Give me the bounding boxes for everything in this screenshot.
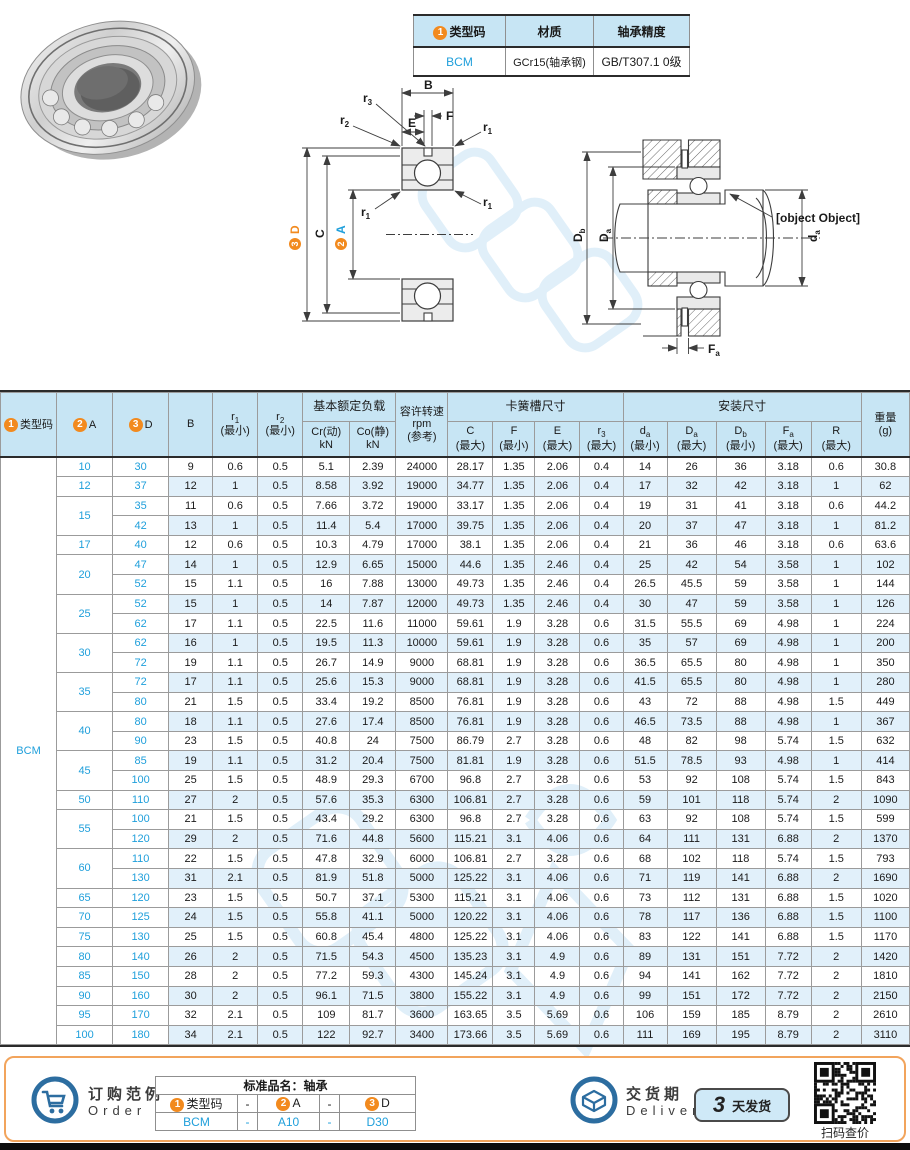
spec-cell: 68.81 (448, 673, 493, 693)
spec-cell: 5.74 (765, 849, 811, 869)
cart-icon (30, 1075, 80, 1125)
spec-cell: 4.98 (765, 712, 811, 732)
order-value-a: A10 (258, 1113, 320, 1131)
order-dash: - (238, 1113, 258, 1131)
spec-cell: 6.88 (765, 829, 811, 849)
spec-cell: 4.06 (535, 868, 580, 888)
bottom-bar (0, 1143, 910, 1150)
spec-cell: 2.7 (493, 731, 535, 751)
dim-label-r1: r1 (361, 205, 371, 221)
spec-cell: 3.18 (765, 477, 811, 497)
spec-cell: 4.06 (535, 888, 580, 908)
bore-a-cell: 25 (57, 594, 113, 633)
spec-cell: 102 (667, 849, 716, 869)
spec-cell: 0.6 (580, 927, 623, 947)
spec-cell: 17 (169, 614, 213, 634)
bore-a-cell: 55 (57, 810, 113, 849)
spec-row: 62171.10.522.511.61100059.611.93.280.631… (1, 614, 910, 634)
spec-cell: 3.28 (535, 614, 580, 634)
spec-cell: 1.5 (213, 731, 258, 751)
od-d-cell: 180 (113, 1025, 169, 1045)
spec-cell: 2.06 (535, 477, 580, 497)
spec-cell: 5000 (396, 868, 448, 888)
spec-cell: 92 (667, 771, 716, 791)
spec-cell: 0.4 (580, 477, 623, 497)
header-Da: Da(最大) (667, 422, 716, 458)
order-col-a: 2A (258, 1095, 320, 1113)
spec-cell: 68 (623, 849, 667, 869)
spec-cell: 0.5 (258, 966, 303, 986)
spec-cell: 5000 (396, 908, 448, 928)
spec-cell: 599 (861, 810, 909, 830)
spec-cell: 126 (861, 594, 909, 614)
spec-cell: 46.5 (623, 712, 667, 732)
spec-cell: 1.35 (493, 555, 535, 575)
spec-cell: 22 (169, 849, 213, 869)
spec-cell: 48.9 (303, 771, 350, 791)
summary-material: GCr15(轴承钢) (506, 47, 594, 76)
spec-cell: 0.5 (258, 1025, 303, 1045)
svg-text:D: D (288, 225, 302, 234)
spec-row: 3572171.10.525.615.3900068.811.93.280.64… (1, 673, 910, 693)
spec-cell: 33.4 (303, 692, 350, 712)
spec-cell: 96.1 (303, 986, 350, 1006)
spec-cell: 4.98 (765, 633, 811, 653)
spec-cell: 0.6 (580, 868, 623, 888)
spec-cell: 4.06 (535, 829, 580, 849)
spec-cell: 0.5 (258, 1006, 303, 1026)
spec-cell: 29.2 (350, 810, 396, 830)
spec-cell: 37 (667, 516, 716, 536)
spec-cell: 35 (623, 633, 667, 653)
spec-cell: 68.81 (448, 653, 493, 673)
spec-cell: 1.9 (493, 692, 535, 712)
spec-cell: 6000 (396, 849, 448, 869)
spec-cell: 195 (716, 1025, 765, 1045)
spec-cell: 135.23 (448, 947, 493, 967)
spec-cell: 71.5 (350, 986, 396, 1006)
spec-cell: 98 (716, 731, 765, 751)
spec-cell: 3800 (396, 986, 448, 1006)
spec-cell: 5600 (396, 829, 448, 849)
spec-cell: 4.98 (765, 673, 811, 693)
spec-cell: 73 (623, 888, 667, 908)
spec-cell: 65.5 (667, 673, 716, 693)
spec-cell: 5.74 (765, 731, 811, 751)
spec-cell: 1.5 (811, 731, 861, 751)
spec-cell: 120.22 (448, 908, 493, 928)
spec-cell: 11.6 (350, 614, 396, 634)
spec-cell: 3.5 (493, 1025, 535, 1045)
spec-cell: 45.4 (350, 927, 396, 947)
spec-cell: 4800 (396, 927, 448, 947)
spec-cell: 2.1 (213, 1006, 258, 1026)
od-d-cell: 170 (113, 1006, 169, 1026)
spec-cell: 2 (811, 829, 861, 849)
spec-cell: 414 (861, 751, 909, 771)
spec-cell: 1.35 (493, 496, 535, 516)
spec-cell: 0.5 (258, 908, 303, 928)
spec-cell: 1 (213, 594, 258, 614)
spec-cell: 2.46 (535, 575, 580, 595)
spec-cell: 0.6 (811, 535, 861, 555)
spec-cell: 81.2 (861, 516, 909, 536)
spec-cell: 155.22 (448, 986, 493, 1006)
spec-cell: 34 (169, 1025, 213, 1045)
spec-cell: 118 (716, 849, 765, 869)
spec-row: 30621610.519.511.31000059.611.93.280.635… (1, 633, 910, 653)
spec-cell: 151 (716, 947, 765, 967)
spec-cell: 5.1 (303, 457, 350, 477)
spec-cell: 0.4 (580, 457, 623, 477)
spec-cell: 101 (667, 790, 716, 810)
spec-cell: 71.6 (303, 829, 350, 849)
spec-cell: 6.88 (765, 868, 811, 888)
spec-cell: 29.3 (350, 771, 396, 791)
od-d-cell: 72 (113, 653, 169, 673)
svg-text:A: A (334, 225, 348, 234)
spec-cell: 1 (811, 594, 861, 614)
header-Db: Db(最小) (716, 422, 765, 458)
spec-cell: 59.61 (448, 614, 493, 634)
spec-cell: 63 (623, 810, 667, 830)
spec-cell: 2.7 (493, 810, 535, 830)
spec-cell: 24 (169, 908, 213, 928)
spec-cell: 1.5 (811, 849, 861, 869)
spec-cell: 112 (667, 888, 716, 908)
header-b: B (169, 393, 213, 458)
catalog-page: 1类型码 材质 轴承精度 BCM GCr15(轴承钢) GB/T307.1 0级 (0, 0, 910, 1150)
spec-table-section: 1类型码 2A 3D B r1(最小) r2(最小) 基本额定负载 容许转速rp… (0, 390, 910, 1047)
spec-cell: 12000 (396, 594, 448, 614)
spec-cell: 0.5 (258, 810, 303, 830)
spec-cell: 28.17 (448, 457, 493, 477)
spec-cell: 0.6 (580, 653, 623, 673)
bore-a-cell: 45 (57, 751, 113, 790)
spec-cell: 1.9 (493, 614, 535, 634)
svg-text:da: da (806, 230, 822, 242)
spec-cell: 16 (169, 633, 213, 653)
spec-cell: 7.88 (350, 575, 396, 595)
spec-cell: 3.1 (493, 927, 535, 947)
spec-cell: 131 (667, 947, 716, 967)
spec-cell: 1.1 (213, 673, 258, 693)
spec-cell: 16 (303, 575, 350, 595)
header-group-snapring: 卡簧槽尺寸 (448, 393, 623, 422)
od-d-cell: 52 (113, 594, 169, 614)
spec-cell: 19000 (396, 477, 448, 497)
cross-section-diagram: B E F r3 r2 r1 r1 r1 3 D C 2 A (283, 76, 513, 346)
bearing-photo (8, 8, 223, 168)
spec-row: 25521510.5147.871200049.731.352.460.4304… (1, 594, 910, 614)
spec-cell: 65.5 (667, 653, 716, 673)
spec-cell: 59 (716, 594, 765, 614)
spec-cell: 29 (169, 829, 213, 849)
delivery-days: 3 (713, 1092, 725, 1118)
spec-cell: 5.74 (765, 771, 811, 791)
spec-cell: 11.4 (303, 516, 350, 536)
spec-cell: 26.5 (623, 575, 667, 595)
spec-cell: 1.5 (213, 908, 258, 928)
dim-label-r3: r3 (363, 91, 373, 107)
spec-cell: 30 (169, 986, 213, 1006)
spec-cell: 15 (169, 594, 213, 614)
spec-cell: 26 (667, 457, 716, 477)
spec-cell: 71.5 (303, 947, 350, 967)
spec-row: 130312.10.581.951.85000125.223.14.060.67… (1, 868, 910, 888)
spec-cell: 1.35 (493, 535, 535, 555)
spec-cell: 43 (623, 692, 667, 712)
spec-row: 421310.511.45.41700039.751.352.060.42037… (1, 516, 910, 536)
od-d-cell: 40 (113, 535, 169, 555)
spec-cell: 89 (623, 947, 667, 967)
spec-cell: 32 (667, 477, 716, 497)
spec-cell: 2 (811, 868, 861, 888)
spec-cell: 7.72 (765, 966, 811, 986)
spec-cell: 31 (169, 868, 213, 888)
spec-cell: 21 (623, 535, 667, 555)
spec-cell: 1.5 (811, 908, 861, 928)
od-d-cell: 72 (113, 673, 169, 693)
spec-cell: 59 (716, 575, 765, 595)
spec-cell: 0.6 (580, 673, 623, 693)
spec-cell: 200 (861, 633, 909, 653)
spec-cell: 26 (169, 947, 213, 967)
spec-cell: 19 (169, 653, 213, 673)
header-e: E(最大) (535, 422, 580, 458)
spec-cell: 47 (716, 516, 765, 536)
spec-cell: 18 (169, 712, 213, 732)
spec-cell: 3.28 (535, 633, 580, 653)
spec-cell: 4.98 (765, 653, 811, 673)
spec-cell: 7.66 (303, 496, 350, 516)
spec-row: 12371210.58.583.921900034.771.352.060.41… (1, 477, 910, 497)
spec-cell: 76.81 (448, 692, 493, 712)
spec-cell: 108 (716, 810, 765, 830)
spec-cell: 6300 (396, 810, 448, 830)
spec-cell: 117 (667, 908, 716, 928)
spec-cell: 0.6 (580, 829, 623, 849)
spec-cell: 0.4 (580, 516, 623, 536)
dim-label-da: da (806, 230, 822, 242)
spec-cell: 3.58 (765, 594, 811, 614)
summary-precision: GB/T307.1 0级 (594, 47, 690, 76)
delivery-title-cn: 交货期 (626, 1083, 683, 1104)
header-a: 2A (57, 393, 113, 458)
spec-cell: 1 (213, 555, 258, 575)
spec-cell: 0.4 (580, 575, 623, 595)
spec-cell: 41 (716, 496, 765, 516)
od-d-cell: 85 (113, 751, 169, 771)
spec-cell: 3110 (861, 1025, 909, 1045)
spec-cell: 106.81 (448, 790, 493, 810)
spec-cell: 0.6 (580, 947, 623, 967)
spec-cell: 5300 (396, 888, 448, 908)
od-d-cell: 62 (113, 633, 169, 653)
spec-cell: 77.2 (303, 966, 350, 986)
spec-summary-table: 1类型码 材质 轴承精度 BCM GCr15(轴承钢) GB/T307.1 0级 (413, 14, 690, 77)
spec-cell: 78.5 (667, 751, 716, 771)
spec-row: 60110221.50.547.832.96000106.812.73.280.… (1, 849, 910, 869)
spec-cell: 2150 (861, 986, 909, 1006)
od-d-cell: 125 (113, 908, 169, 928)
spec-cell: 2.1 (213, 868, 258, 888)
spec-cell: 1810 (861, 966, 909, 986)
spec-cell: 96.8 (448, 810, 493, 830)
spec-cell: 1100 (861, 908, 909, 928)
spec-cell: 10.3 (303, 535, 350, 555)
od-d-cell: 47 (113, 555, 169, 575)
spec-row: 95170322.10.510981.73600163.653.55.690.6… (1, 1006, 910, 1026)
spec-cell: 5.74 (765, 790, 811, 810)
spec-row: 4080181.10.527.617.4850076.811.93.280.64… (1, 712, 910, 732)
spec-cell: 6.88 (765, 927, 811, 947)
spec-cell: 0.6 (213, 496, 258, 516)
footer-panel: 订购范例 Order 标准品名：轴承 1类型码 - 2A - 3D BCM - … (4, 1056, 906, 1142)
spec-cell: 163.65 (448, 1006, 493, 1026)
spec-row: 100180342.10.512292.73400173.663.55.690.… (1, 1025, 910, 1045)
spec-cell: 350 (861, 653, 909, 673)
spec-cell: 8.58 (303, 477, 350, 497)
spec-cell: 69 (716, 614, 765, 634)
bore-a-cell: 50 (57, 790, 113, 810)
spec-cell: 0.6 (811, 496, 861, 516)
spec-cell: 19.5 (303, 633, 350, 653)
spec-cell: 2 (811, 1006, 861, 1026)
spec-cell: 20.4 (350, 751, 396, 771)
header-c: C(最大) (448, 422, 493, 458)
spec-cell: 69 (716, 633, 765, 653)
spec-row: 801402620.571.554.34500135.233.14.90.689… (1, 947, 910, 967)
spec-cell: 1 (811, 712, 861, 732)
spec-cell: 9000 (396, 673, 448, 693)
spec-cell: 1.9 (493, 633, 535, 653)
header-Fa: Fa(最大) (765, 422, 811, 458)
spec-cell: 22.5 (303, 614, 350, 634)
spec-cell: 5.69 (535, 1025, 580, 1045)
spec-cell: 71 (623, 868, 667, 888)
spec-cell: 122 (303, 1025, 350, 1045)
spec-cell: 3.18 (765, 535, 811, 555)
spec-cell: 0.5 (258, 868, 303, 888)
spec-cell: 0.5 (258, 516, 303, 536)
header-r3: r3(最大) (580, 422, 623, 458)
spec-cell: 1 (811, 633, 861, 653)
spec-cell: 49.73 (448, 575, 493, 595)
spec-cell: 1.5 (811, 888, 861, 908)
spec-cell: 0.6 (580, 1006, 623, 1026)
spec-cell: 17 (169, 673, 213, 693)
spec-cell: 3.28 (535, 712, 580, 732)
spec-cell: 25 (169, 927, 213, 947)
spec-cell: 0.5 (258, 555, 303, 575)
spec-row: 55100211.50.543.429.2630096.82.73.280.66… (1, 810, 910, 830)
delivery-days-label: 天发货 (732, 1096, 771, 1115)
spec-cell: 1370 (861, 829, 909, 849)
spec-cell: 3.1 (493, 829, 535, 849)
dim-label-Da: Da (597, 228, 613, 242)
spec-cell: 9 (169, 457, 213, 477)
spec-cell: 1.1 (213, 712, 258, 732)
spec-cell: 51.5 (623, 751, 667, 771)
spec-row: 4585191.10.531.220.4750081.811.93.280.65… (1, 751, 910, 771)
spec-row: 501102720.557.635.36300106.812.73.280.65… (1, 790, 910, 810)
spec-cell: 55.5 (667, 614, 716, 634)
spec-cell: 33.17 (448, 496, 493, 516)
od-d-cell: 42 (113, 516, 169, 536)
spec-cell: 793 (861, 849, 909, 869)
spec-cell: 115.21 (448, 888, 493, 908)
spec-cell: 125.22 (448, 868, 493, 888)
dim-label-r1: r1 (483, 195, 493, 211)
spec-cell: 125.22 (448, 927, 493, 947)
spec-cell: 0.6 (213, 457, 258, 477)
spec-cell: 2 (213, 829, 258, 849)
summary-header-typecode: 1类型码 (414, 15, 506, 47)
od-d-cell: 90 (113, 731, 169, 751)
spec-cell: 14 (169, 555, 213, 575)
spec-cell: 3.1 (493, 966, 535, 986)
spec-cell: 21 (169, 692, 213, 712)
spec-cell: 31 (667, 496, 716, 516)
spec-cell: 1 (811, 516, 861, 536)
spec-cell: 5.4 (350, 516, 396, 536)
spec-cell: 1.1 (213, 614, 258, 634)
spec-cell: 17.4 (350, 712, 396, 732)
spec-cell: 4.06 (535, 927, 580, 947)
spec-cell: 5.69 (535, 1006, 580, 1026)
spec-cell: 6.88 (765, 888, 811, 908)
order-dash: - (320, 1095, 340, 1113)
summary-header-material: 材质 (506, 15, 594, 47)
spec-cell: 14 (623, 457, 667, 477)
spec-cell: 102 (861, 555, 909, 575)
spec-cell: 1170 (861, 927, 909, 947)
od-d-cell: 30 (113, 457, 169, 477)
spec-cell: 1 (811, 614, 861, 634)
spec-cell: 92.7 (350, 1025, 396, 1045)
spec-cell: 108 (716, 771, 765, 791)
spec-cell: 1 (213, 633, 258, 653)
spec-cell: 24 (350, 731, 396, 751)
spec-cell: 0.4 (580, 594, 623, 614)
spec-cell: 0.6 (811, 457, 861, 477)
od-d-cell: 120 (113, 829, 169, 849)
order-title-cn: 订购范例 (88, 1083, 164, 1104)
bore-a-cell: 65 (57, 888, 113, 908)
header-typecode: 1类型码 (1, 393, 57, 458)
bore-a-cell: 20 (57, 555, 113, 594)
header-weight: 重量(g) (861, 393, 909, 458)
spec-cell: 60.8 (303, 927, 350, 947)
spec-cell: 1.35 (493, 575, 535, 595)
spec-cell: 1.35 (493, 516, 535, 536)
bore-a-cell: 15 (57, 496, 113, 535)
spec-cell: 111 (623, 1025, 667, 1045)
spec-cell: 2.06 (535, 535, 580, 555)
spec-cell: 36 (716, 457, 765, 477)
spec-cell: 3.28 (535, 673, 580, 693)
spec-cell: 3.72 (350, 496, 396, 516)
spec-cell: 88 (716, 712, 765, 732)
spec-cell: 1020 (861, 888, 909, 908)
svg-text:Da: Da (597, 228, 613, 242)
spec-cell: 3.1 (493, 868, 535, 888)
header-group-mounting: 安装尺寸 (623, 393, 861, 422)
spec-cell: 0.5 (258, 927, 303, 947)
bore-a-cell: 90 (57, 986, 113, 1006)
spec-cell: 86.79 (448, 731, 493, 751)
